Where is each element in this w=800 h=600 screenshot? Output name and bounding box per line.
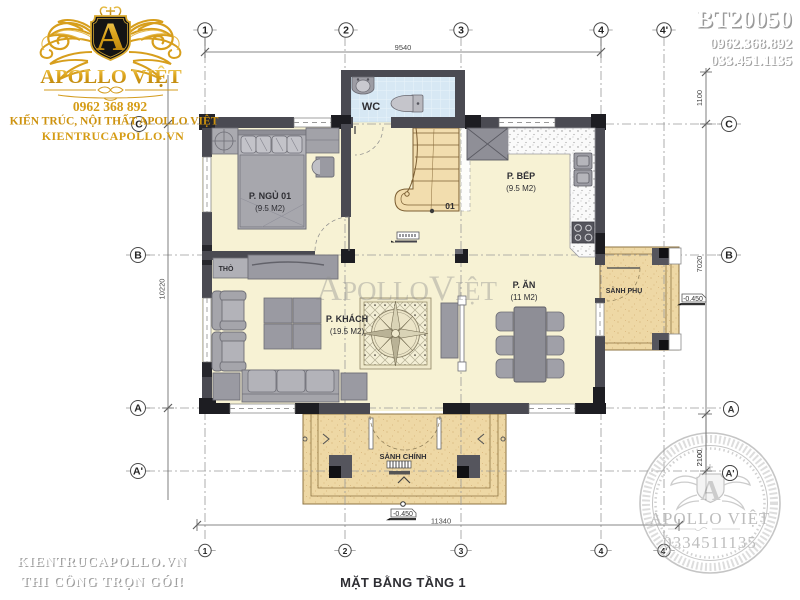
svg-text:A: A	[700, 476, 721, 507]
svg-text:WC: WC	[362, 101, 380, 113]
svg-text:11340: 11340	[431, 517, 451, 526]
svg-text:SẢNH PHỤ: SẢNH PHỤ	[606, 286, 643, 295]
svg-text:KIENTRUCAPOLLO.VN: KIENTRUCAPOLLO.VN	[17, 554, 187, 569]
svg-text:1100: 1100	[695, 90, 704, 106]
svg-text:(9.5 M2): (9.5 M2)	[506, 184, 536, 193]
svg-text:0962.368.892: 0962.368.892	[710, 36, 793, 52]
svg-text:033.451.1135: 033.451.1135	[710, 53, 792, 69]
svg-text:A': A'	[133, 466, 143, 478]
svg-text:01: 01	[445, 201, 455, 211]
svg-text:THI CÔNG TRỌN GÓI!: THI CÔNG TRỌN GÓI!	[21, 574, 184, 589]
svg-text:10220: 10220	[158, 279, 167, 300]
svg-text:0962 368 892: 0962 368 892	[73, 99, 148, 114]
svg-text:A: A	[728, 405, 735, 416]
svg-text:C: C	[725, 119, 733, 131]
svg-text:2: 2	[343, 546, 348, 556]
svg-text:(19.5 M2): (19.5 M2)	[330, 327, 365, 336]
svg-text:A': A'	[725, 469, 734, 480]
svg-text:-0.450: -0.450	[393, 511, 413, 518]
svg-text:P. NGỦ 01: P. NGỦ 01	[249, 190, 291, 201]
svg-text:4: 4	[599, 546, 604, 556]
svg-text:3: 3	[458, 25, 464, 37]
svg-text:(9.5 M2): (9.5 M2)	[255, 204, 285, 213]
svg-text:9540: 9540	[395, 43, 412, 52]
svg-text:-0.450: -0.450	[683, 296, 703, 303]
svg-text:BT20050: BT20050	[696, 7, 792, 33]
svg-text:APOLLO VIỆT: APOLLO VIỆT	[40, 65, 182, 88]
svg-text:MẶT BẰNG TẦNG 1: MẶT BẰNG TẦNG 1	[340, 575, 466, 590]
svg-text:3: 3	[459, 546, 464, 556]
svg-text:KIENTRUCAPOLLO.VN: KIENTRUCAPOLLO.VN	[42, 129, 184, 143]
svg-text:SẢNH CHÍNH: SẢNH CHÍNH	[379, 452, 426, 461]
svg-text:4: 4	[598, 25, 604, 37]
svg-text:P. KHÁCH: P. KHÁCH	[326, 314, 368, 324]
svg-text:A: A	[134, 403, 142, 415]
svg-text:2: 2	[343, 25, 349, 37]
svg-text:0334511135: 0334511135	[663, 533, 757, 552]
svg-text:P. BẾP: P. BẾP	[507, 171, 535, 181]
svg-text:7020: 7020	[695, 256, 704, 273]
svg-text:P. ĂN: P. ĂN	[513, 280, 536, 290]
svg-text:1: 1	[202, 25, 208, 37]
svg-text:4': 4'	[660, 25, 668, 37]
svg-text:A: A	[96, 14, 125, 59]
svg-text:THÒ: THÒ	[219, 264, 234, 273]
svg-text:B: B	[134, 250, 142, 262]
svg-text:1: 1	[203, 546, 208, 556]
svg-text:B: B	[725, 250, 733, 262]
svg-text:2100: 2100	[695, 450, 704, 467]
svg-text:APOLLO VIỆT: APOLLO VIỆT	[650, 509, 771, 528]
svg-text:(11 M2): (11 M2)	[511, 293, 538, 302]
svg-text:KIẾN TRÚC, NỘI THẤT APOLLO VIỆ: KIẾN TRÚC, NỘI THẤT APOLLO VIỆT	[10, 113, 219, 128]
